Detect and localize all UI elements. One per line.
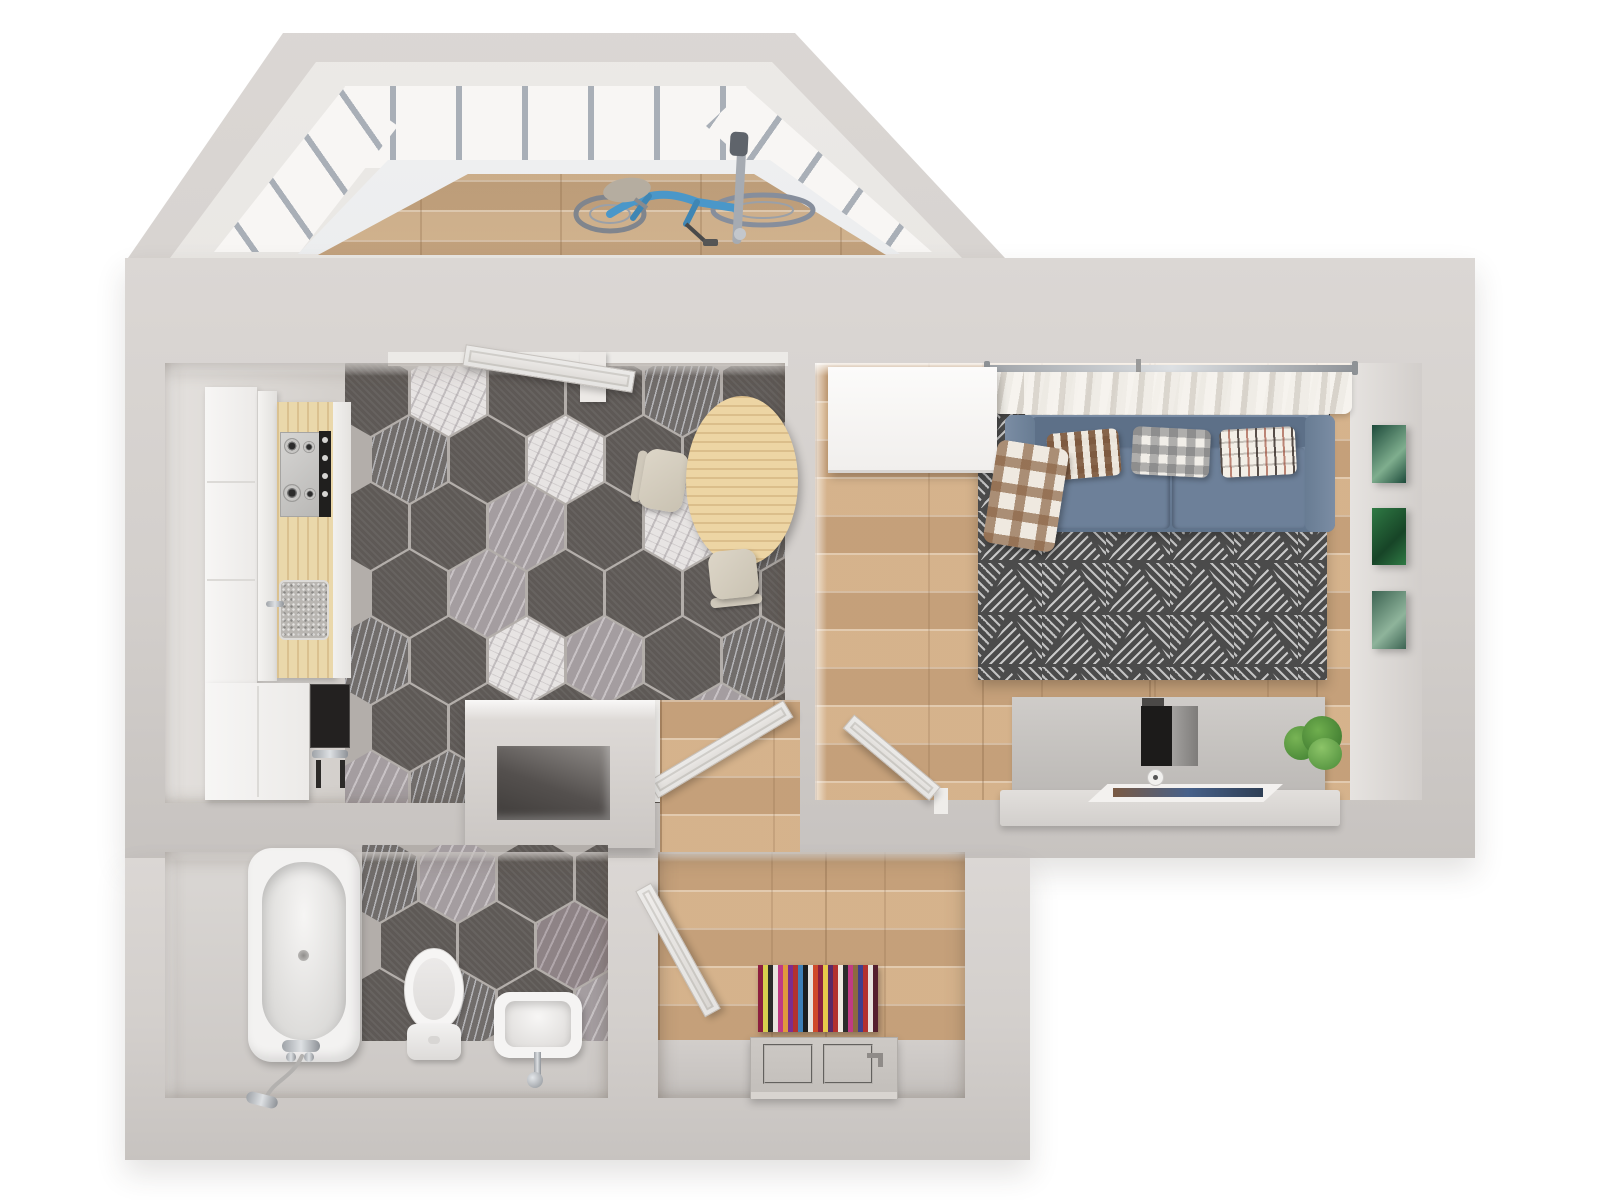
door-bottom-rail — [751, 1092, 897, 1099]
shaft-top-face — [465, 700, 655, 720]
sink-faucet — [266, 601, 284, 607]
sofa-pillow-ikat — [1219, 426, 1297, 478]
cabinet-seam — [207, 579, 255, 581]
hallway-striped-rug — [758, 965, 878, 1032]
hob-knob — [322, 473, 328, 479]
floor-tile — [645, 617, 720, 704]
bathtub — [248, 848, 360, 1062]
wall-picture — [1372, 508, 1406, 565]
floor-tile — [459, 902, 534, 989]
rug-stripe — [873, 965, 878, 1032]
kitchen-tall-cabinet — [205, 387, 257, 683]
floor-tile — [537, 902, 608, 989]
oven-leg — [340, 760, 345, 788]
dining-chair — [701, 547, 767, 611]
floor-tile — [450, 550, 525, 637]
monitor-stand-pin — [1153, 775, 1158, 780]
kitchen-cabinet-door-edge — [257, 391, 277, 681]
cabinet-seam — [257, 686, 259, 797]
hob-burner — [304, 488, 316, 500]
monitor-back — [1141, 706, 1172, 766]
floor-tile — [606, 550, 681, 637]
kitchen-counter-edge — [333, 402, 351, 678]
dining-table — [686, 396, 798, 566]
floor-tile — [450, 416, 525, 503]
floor-tile — [489, 617, 564, 704]
magazine — [1088, 784, 1283, 802]
wall-picture — [1372, 591, 1406, 649]
sofa-pillow-gingham — [1131, 426, 1211, 478]
floor-tile — [567, 617, 642, 704]
curtain-rod-end — [1352, 361, 1358, 375]
oven-leg — [316, 760, 321, 788]
bicycle — [535, 122, 825, 252]
hob-burner — [284, 438, 300, 454]
chair-seat — [637, 447, 691, 514]
floor-tile — [411, 617, 486, 704]
toilet-flush-button — [428, 1036, 440, 1044]
toilet — [404, 948, 464, 1062]
hob-control-panel — [319, 431, 331, 517]
floor-tile — [372, 684, 447, 771]
washbasin — [494, 992, 582, 1058]
floor-tile — [372, 550, 447, 637]
oven — [310, 684, 350, 748]
plant-foliage — [1308, 738, 1342, 770]
hob-knob — [322, 455, 328, 461]
cabinet-seam — [207, 481, 255, 483]
curtain-rod — [986, 365, 1358, 372]
hob-burner — [303, 441, 315, 453]
toilet-lid-inner — [413, 958, 455, 1020]
plant — [1284, 716, 1342, 770]
shaft-duct-opening — [497, 746, 610, 820]
monitor-side — [1172, 706, 1198, 766]
washbasin-bowl — [505, 1001, 571, 1047]
sofa-armrest-right — [1305, 415, 1335, 532]
door-panel — [823, 1044, 873, 1084]
entrance-door — [750, 1037, 898, 1099]
door-handle — [878, 1053, 883, 1067]
chair-seat — [707, 548, 760, 601]
kitchen-sink — [279, 580, 329, 640]
magazine-cover — [1113, 788, 1263, 797]
floor-tile — [528, 416, 603, 503]
curtain-panel — [1024, 372, 1330, 420]
hob-knob — [322, 491, 328, 497]
floor-tile — [372, 416, 447, 503]
kitchen-base-cabinet — [205, 683, 309, 800]
wall-picture — [1372, 425, 1406, 483]
floor-plan-canvas — [0, 0, 1600, 1200]
bathtub-drain — [298, 950, 309, 961]
basin-tap-head — [527, 1072, 543, 1088]
floor-tile — [528, 550, 603, 637]
hob-knob — [322, 437, 328, 443]
wardrobe — [828, 367, 997, 473]
floor-tile — [411, 483, 486, 570]
floor-tile — [489, 483, 564, 570]
hob-burner — [283, 484, 301, 502]
ventilation-shaft — [465, 700, 655, 848]
monitor-stand-base — [1147, 769, 1164, 786]
oven-handle — [312, 750, 348, 758]
door-panel — [763, 1044, 813, 1084]
dining-chair — [629, 444, 693, 516]
